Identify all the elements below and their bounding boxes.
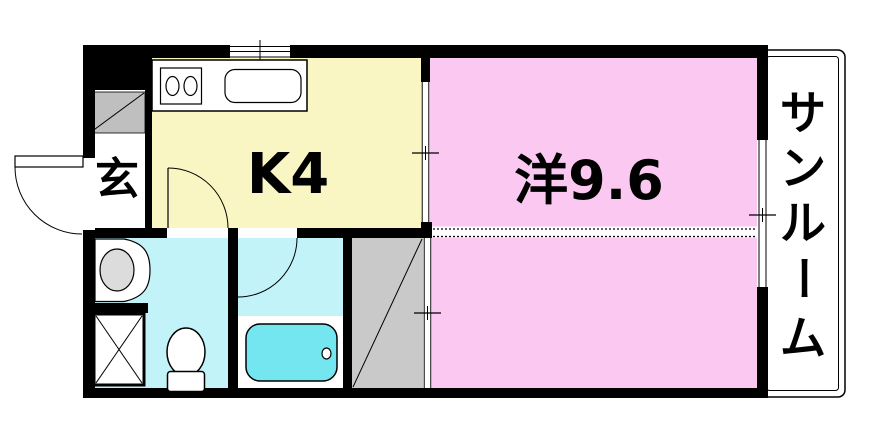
toilet-tank bbox=[168, 372, 205, 392]
wall-bath-closet bbox=[343, 238, 352, 388]
wall-kitchen-room-lower bbox=[421, 222, 432, 238]
sunroom-label: サ ン ル ー ム bbox=[776, 86, 830, 365]
wall-left-upper bbox=[83, 45, 95, 158]
sunroom-label-char: ー bbox=[776, 255, 830, 301]
kitchen-sink bbox=[225, 70, 301, 103]
room-divider-band bbox=[430, 227, 757, 238]
washbasin bbox=[100, 249, 134, 291]
sunroom-label-char: サ bbox=[780, 86, 826, 140]
wall-genkan-kitchen bbox=[145, 58, 152, 228]
floor-plan: 玄 K4 洋9.6 サ ン ル ー ム bbox=[0, 0, 875, 425]
stove-burner-left bbox=[166, 77, 179, 96]
wall-room-sunroom-upper bbox=[757, 52, 768, 140]
western-room-floor bbox=[430, 58, 757, 388]
toilet-bowl bbox=[167, 328, 205, 376]
wall-room-sunroom-lower bbox=[757, 287, 768, 397]
genkan-label: 玄 bbox=[95, 154, 139, 205]
kitchen-label: K4 bbox=[247, 142, 329, 207]
entrance-door-swing-arc bbox=[15, 167, 82, 234]
entrance-door-leaf bbox=[15, 156, 83, 167]
wall-mid-left-segment bbox=[95, 228, 167, 238]
sunroom-label-char: ン bbox=[780, 141, 826, 195]
sunroom-label-char: ル bbox=[780, 196, 826, 250]
stove-burner-right bbox=[184, 77, 197, 96]
wall-kitchen-room-upper bbox=[421, 52, 430, 82]
wall-below-basin bbox=[95, 303, 148, 313]
floor-plan-canvas: 玄 K4 洋9.6 サ ン ル ー ム bbox=[0, 0, 875, 425]
western-room-label: 洋9.6 bbox=[514, 149, 664, 212]
wall-toilet-bath bbox=[228, 228, 238, 388]
wall-mid-right-segment bbox=[297, 228, 421, 238]
wall-top-right-segment bbox=[290, 45, 768, 58]
bathtub-drain bbox=[322, 348, 331, 359]
sunroom-label-char: ム bbox=[780, 311, 826, 365]
